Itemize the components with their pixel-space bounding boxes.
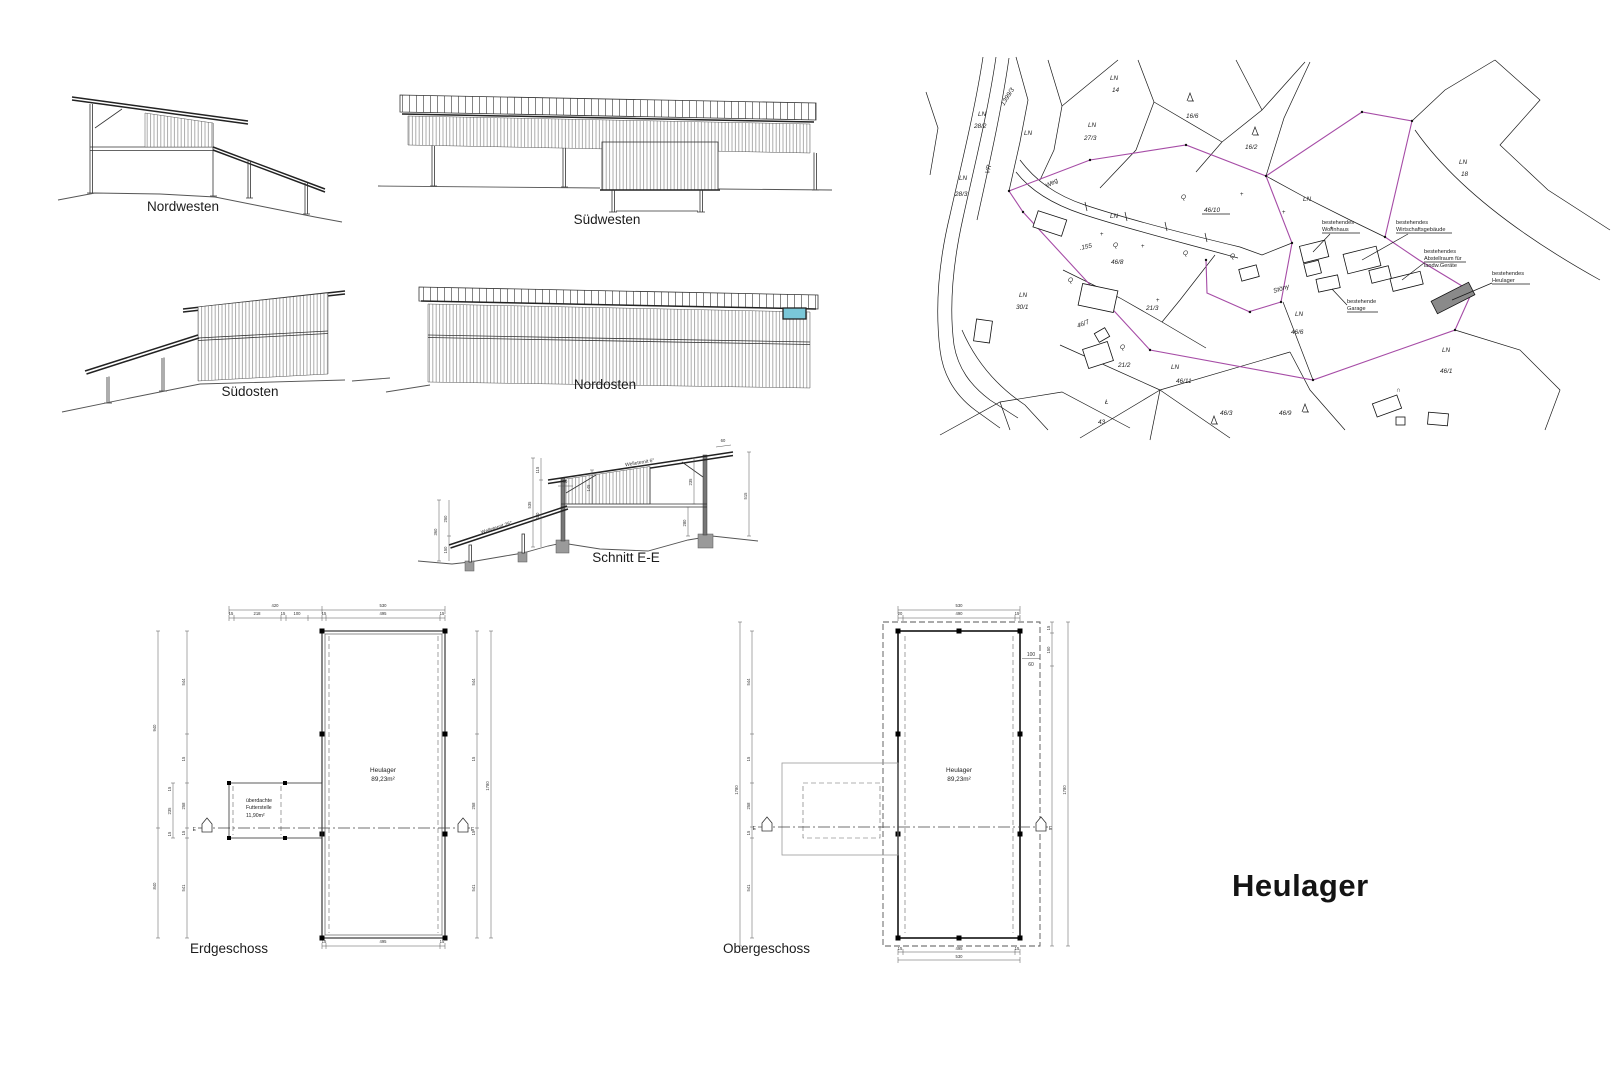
building-footprint-garage (1316, 275, 1340, 292)
dim-label: 60 (721, 438, 726, 443)
parcel-line (1240, 176, 1385, 380)
lean-column (522, 534, 525, 553)
parcel-label: 46/8 (1111, 259, 1124, 266)
elevation-label-suedosten: Südosten (221, 384, 278, 399)
parcel-label: Q (1068, 277, 1073, 284)
dim-label: 541 (181, 884, 186, 892)
parcel-line (1040, 60, 1118, 180)
plan-label-erdgeschoss: Erdgeschoss (190, 941, 268, 956)
parcel-label: 28/2 (973, 123, 987, 130)
dim-label: 490 (956, 611, 964, 616)
dim-label: 235 (167, 807, 172, 815)
building-footprint-wirtschaftsgebaeude (1369, 266, 1392, 283)
road-line (938, 57, 1000, 428)
parcel-label: 16/6 (1186, 113, 1199, 120)
parcel-line (940, 392, 1130, 435)
parcel-label: LN (1442, 347, 1451, 354)
dim-label: 250 (443, 515, 448, 523)
columns (248, 161, 308, 214)
parcel-label: LN (1110, 213, 1119, 220)
dim-label: 515 (743, 492, 748, 500)
wall-outline (322, 631, 445, 938)
dim-label: 495 (380, 939, 388, 944)
post-marker (443, 832, 448, 837)
elevation-suedosten: Südosten (62, 291, 390, 412)
floorplan-erdgeschoss: Heulager 89,23m² überdachte Futterstelle… (152, 603, 493, 956)
building-footprint-wohnhaus (1304, 260, 1322, 276)
lean-roof-line (213, 147, 325, 192)
building-footprint (1396, 417, 1405, 425)
annex-name: überdachte (246, 798, 272, 804)
section-marker (762, 817, 772, 831)
parcel-label: LN (1024, 130, 1033, 137)
dim-label: 1780 (734, 785, 739, 795)
dim-label: 1780 (1062, 785, 1067, 795)
dim-label: 258 (471, 802, 476, 810)
annotation-text: Abstellraum für (1424, 256, 1462, 262)
annex-below-dashed (803, 783, 880, 838)
post-marker (1018, 832, 1023, 837)
dim-lines (158, 610, 491, 946)
wall-inner (325, 634, 442, 935)
place-label: Stöny (1272, 283, 1290, 295)
parcel-label: 30/1 (1016, 304, 1029, 311)
dim-label: 495 (380, 611, 388, 616)
room-name: Heulager (946, 767, 973, 774)
parcel-label: LN (978, 111, 987, 118)
annotation-text: bestehende (1347, 299, 1376, 305)
dim-label: 15 (898, 946, 903, 951)
post-marker (320, 629, 325, 634)
building-footprint (1239, 265, 1259, 281)
parcel-label: 46/1 (1440, 368, 1453, 375)
svg-text:+: + (1156, 298, 1160, 304)
floorplan-obergeschoss: Heulager 89,23m² E E 530 20 490 15 15 49… (723, 603, 1070, 963)
annex-area: 11,90m² (246, 813, 265, 819)
section-marker-label: E (1049, 826, 1053, 832)
dim-label: 15 (322, 611, 327, 616)
lean-column (469, 545, 472, 562)
post-marker (896, 732, 901, 737)
building-footprint-abstellraum (1390, 271, 1423, 291)
parcel-label: 46/3 (1220, 410, 1233, 417)
parcel-line (926, 92, 938, 175)
footing (698, 534, 713, 548)
dim-label: 15 (1046, 625, 1051, 630)
section-schnitt-ee: Welleternit 6° Welleternit 26° 360 250 1… (418, 438, 758, 571)
dim-label: 541 (471, 884, 476, 892)
post-marker (1018, 936, 1023, 941)
post-marker (443, 629, 448, 634)
section-marker (458, 818, 468, 832)
dim-lines (740, 610, 1068, 960)
post-marker (443, 732, 448, 737)
building-footprint (1078, 283, 1118, 312)
section-label: Schnitt E-E (592, 550, 660, 565)
plan-drawing: Nordwesten Südwesten Südosten Nordosten (0, 0, 1619, 1080)
sheet-title: Heulager (1232, 868, 1369, 903)
dim-label: 15 (1015, 946, 1020, 951)
dim-label: 541 (746, 884, 751, 892)
svg-text:+: + (1240, 192, 1244, 198)
road-label-weg: Weg (1045, 177, 1060, 190)
annex-name: Futterstelle (246, 805, 272, 811)
column-cut (703, 455, 707, 535)
dim-label: 840 (152, 882, 157, 890)
site-plan: +++ +++ ++ ∩ LN 28/2 1399/3 LN VR (926, 57, 1610, 440)
post-marker (1018, 732, 1023, 737)
parcel-line (1266, 62, 1310, 176)
dim-label: 115 (535, 466, 540, 473)
annex-columns (612, 190, 703, 212)
elevation-nordosten: Nordosten (386, 287, 818, 392)
dim-label: 218 (254, 611, 262, 616)
window-size-note: 100 (1027, 652, 1036, 658)
parcel-label: Q (1230, 253, 1235, 260)
svg-text:+: + (1141, 244, 1145, 250)
section-marker (1036, 817, 1046, 831)
parcel-line (1100, 60, 1305, 188)
dim-label: 280 (682, 519, 687, 527)
annotation-text: bestehendes (1322, 220, 1354, 226)
parcel-label: LN (1459, 159, 1468, 166)
dim-label: 235 (688, 478, 693, 486)
svg-text:+: + (1282, 210, 1286, 216)
annotation-garage: bestehende Garage (1332, 289, 1378, 312)
parcel-label: Ł (1105, 399, 1109, 406)
parcel-label: 16/2 (1245, 144, 1258, 151)
dim-label: 544 (181, 678, 186, 686)
parcel-label: 43 (1098, 419, 1106, 426)
post-marker (896, 629, 901, 634)
post-dashed-lines (905, 636, 1013, 933)
dim-label: 420 (272, 603, 280, 608)
parcel-label: .155 (1079, 242, 1093, 252)
beam-lines (561, 504, 707, 507)
dim-label: 940 (152, 724, 157, 732)
building-footprint (1083, 341, 1114, 368)
parcel-label: LN (959, 175, 968, 182)
parcel-label: 28/3 (954, 191, 968, 198)
wall-outline (898, 631, 1020, 938)
parcel-label: LN (1019, 292, 1028, 299)
ground-line (386, 385, 430, 392)
parcel-label: Q (1183, 250, 1188, 257)
building-footprint (974, 319, 993, 343)
parcel-label: 46/9 (1279, 410, 1292, 417)
post-marker (957, 629, 962, 634)
dim-label: 150 (443, 546, 448, 554)
parcel-line (1009, 57, 1028, 191)
dim-label: 15 (471, 830, 476, 835)
dim-label: 15 (746, 830, 751, 835)
parcel-label: 21/3 (1145, 305, 1159, 312)
section-marker (202, 818, 212, 832)
elevation-suedwesten: Südwesten (378, 95, 832, 227)
dim-label: 258 (181, 802, 186, 810)
parcel-label: Q (1181, 194, 1186, 201)
dim-label: 530 (380, 603, 388, 608)
dim-label: 15 (167, 786, 172, 791)
parcel-line (1455, 330, 1560, 430)
parcel-label: 21/2 (1117, 362, 1131, 369)
parcel-label: 46/6 (1291, 329, 1304, 336)
post-marker (283, 836, 287, 840)
dim-label: 258 (746, 802, 751, 810)
dim-ticks (156, 606, 493, 949)
survey-points (1008, 111, 1473, 381)
elevation-label-nordwesten: Nordwesten (147, 199, 219, 214)
parcel-line (1412, 60, 1610, 230)
window (783, 308, 806, 319)
dim-label: 15 (440, 939, 445, 944)
dim-label: 535 (527, 501, 532, 509)
dim-label: 15 (229, 611, 234, 616)
roof-band (400, 95, 816, 120)
parcel-label: 46/7 (1076, 319, 1091, 330)
cave-symbol: ∩ (1396, 387, 1401, 394)
drawing-sheet: Nordwesten Südwesten Südosten Nordosten (0, 0, 1619, 1080)
room-name: Heulager (370, 767, 397, 774)
building-footprint-heulager-existing (1431, 282, 1475, 314)
annotation-text: bestehendes (1424, 249, 1456, 255)
dim-label: 360 (433, 528, 438, 536)
roof-outline-dashed (883, 622, 1040, 946)
elevation-label-nordosten: Nordosten (574, 377, 636, 392)
dim-label: 80 (563, 479, 568, 484)
post-marker (957, 936, 962, 941)
tree-symbols (1187, 93, 1309, 424)
annex-cladding (602, 142, 718, 190)
annotation-text: Wohnhaus (1322, 227, 1349, 233)
annex-roof-outline (782, 763, 898, 855)
post-marker (896, 936, 901, 941)
dim-label: 530 (956, 954, 964, 959)
annotation-text: bestehendes (1396, 220, 1428, 226)
dim-label: 15 (181, 830, 186, 835)
dim-label: 15 (440, 611, 445, 616)
post-marker (227, 836, 231, 840)
annotation-text: Heulager (1492, 278, 1515, 284)
dim-label: 15 (281, 611, 286, 616)
roof-material-note: Welleternit 26° (480, 520, 513, 536)
parcel-label: LN (1295, 311, 1304, 318)
elevation-label-suedwesten: Südwesten (574, 212, 641, 227)
parcel-label: LN (1303, 196, 1312, 203)
room-area: 89,23m² (371, 776, 394, 783)
annotation-text: Wirtschaftsgebäude (1396, 227, 1445, 233)
annex-outline (229, 783, 322, 838)
parcel-label: 18 (1461, 171, 1469, 178)
dim-label: 20 (898, 611, 903, 616)
dim-label: 544 (746, 678, 751, 686)
dim-label: 150 (1046, 646, 1051, 654)
plan-label-obergeschoss: Obergeschoss (723, 941, 810, 956)
annotation-text: landw.Geräte (1424, 263, 1457, 269)
dim-label: 15 (167, 831, 172, 836)
parcel-label: LN (1088, 122, 1097, 129)
road-line (962, 58, 1048, 430)
room-area: 89,23m² (947, 776, 970, 783)
dim-label: 480 (535, 512, 540, 520)
post-marker (283, 781, 287, 785)
cladding (428, 304, 810, 388)
section-marker-label: E (193, 827, 197, 833)
dim-label: 145 (586, 484, 591, 492)
elevation-nordwesten: Nordwesten (58, 97, 342, 222)
dim-label: 15 (181, 756, 186, 761)
window-size-note: 60 (1028, 662, 1034, 668)
footing (518, 552, 527, 562)
dim-label: 544 (471, 678, 476, 686)
dim-label: 15 (746, 756, 751, 761)
parcel-label: VR (984, 164, 993, 175)
parcel-label: LN (1171, 364, 1180, 371)
building-footprint (1428, 412, 1449, 426)
dim-label: 1780 (485, 781, 490, 791)
building-footprint-wohnhaus (1299, 240, 1328, 263)
dim-label: 530 (956, 603, 964, 608)
lean-roof-line (85, 335, 199, 374)
parcel-label: Q (1120, 344, 1125, 351)
post-dashed-lines (329, 636, 438, 933)
parcel-label: 27/3 (1083, 135, 1097, 142)
dim-label: 15 (471, 756, 476, 761)
parcel-label: 46/10 (1204, 207, 1220, 214)
dim-label: 495 (956, 946, 964, 951)
building-footprint (1094, 328, 1109, 343)
building-footprint (1033, 211, 1067, 236)
building-footprint (1372, 395, 1401, 417)
parcel-label: 46/11 (1176, 378, 1192, 385)
annotation-text: bestehendes (1492, 271, 1524, 277)
parcel-label: Q (1113, 242, 1118, 249)
annotation-text: Garage (1347, 306, 1366, 312)
dim-label: 100 (294, 611, 302, 616)
parcel-label: 14 (1112, 87, 1120, 94)
post-marker (320, 732, 325, 737)
post-marker (227, 781, 231, 785)
footing (465, 561, 474, 571)
footing (556, 540, 569, 553)
svg-text:+: + (1100, 232, 1104, 238)
leader-line (1332, 289, 1347, 305)
dim-label: 15 (322, 939, 327, 944)
dim-label: 15 (1015, 611, 1020, 616)
post-marker (1018, 629, 1023, 634)
parcel-label: LN (1110, 75, 1119, 82)
